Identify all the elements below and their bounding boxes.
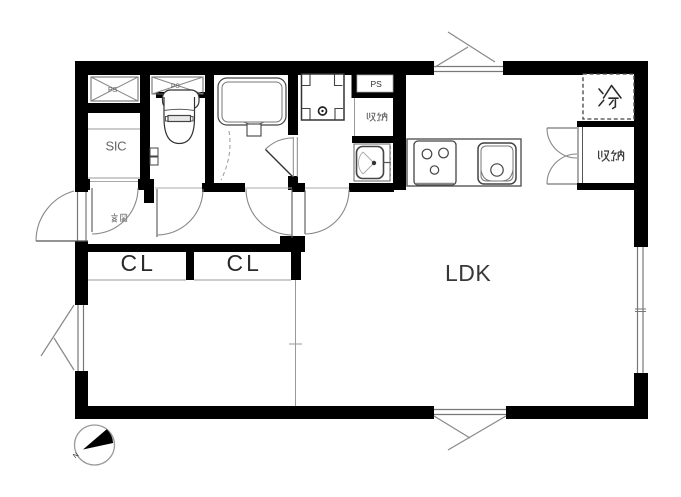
svg-text:LDK: LDK	[445, 260, 491, 286]
svg-text:PS: PS	[171, 83, 180, 90]
svg-text:SIC: SIC	[106, 139, 127, 154]
svg-text:CL: CL	[121, 250, 156, 276]
svg-text:PS: PS	[108, 87, 118, 94]
svg-text:PS: PS	[371, 79, 383, 89]
svg-text:CL: CL	[227, 250, 262, 276]
